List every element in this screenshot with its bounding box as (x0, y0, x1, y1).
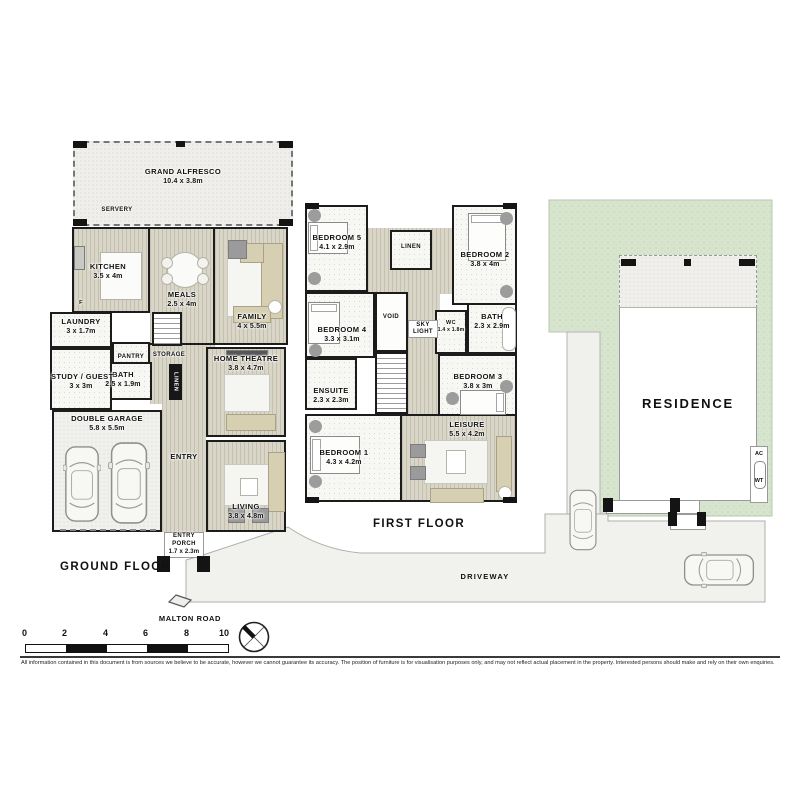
wall-pillar (503, 203, 517, 209)
dining-chair (197, 273, 209, 285)
alfresco-pillar (73, 219, 87, 226)
room-label-home-theatre: HOME THEATRE 3.8 x 4.7m (210, 354, 282, 373)
room-label-ensuite: ENSUITE 2.3 x 2.3m (307, 386, 355, 405)
ceiling-dot (500, 285, 513, 298)
room-label-leisure: LEISURE 5.5 x 4.2m (438, 420, 496, 439)
residence-label: RESIDENCE (625, 396, 751, 411)
room-label-study-guest: STUDY / GUEST 3 x 3m (51, 372, 111, 391)
residence-pillar (684, 259, 691, 266)
disclaimer-text: All information contained in this docume… (21, 660, 779, 666)
scale-tick: 10 (219, 628, 229, 638)
alfresco-pillar (73, 141, 87, 148)
footer-divider (20, 656, 780, 658)
parked-car (566, 488, 600, 552)
dining-chair (197, 257, 209, 269)
scale-tick: 0 (22, 628, 27, 638)
leisure-sofa (430, 488, 484, 503)
living-table (240, 478, 258, 496)
alfresco-pillar (279, 219, 293, 226)
porch-pillar (197, 556, 210, 572)
alfresco-pillar (176, 141, 185, 147)
room-label-wc: WC 1.4 x 1.8m (436, 320, 466, 334)
first-floor-title: FIRST FLOOR (373, 518, 465, 530)
wall-pillar (503, 497, 517, 503)
first-stairs (375, 352, 408, 414)
road-label: MALTON ROAD (150, 614, 230, 623)
room-label-void: VOID (376, 314, 406, 322)
ceiling-dot (309, 420, 322, 433)
residence-porch-pillar (603, 498, 613, 512)
room-label-servery: SERVERY (92, 207, 142, 215)
room-label-grand-alfresco: GRAND ALFRESCO 10.4 x 3.8m (123, 167, 243, 186)
ceiling-dot (500, 212, 513, 225)
ceiling-dot (309, 475, 322, 488)
room-label-family: FAMILY 4 x 5.5m (219, 312, 285, 331)
ceiling-dot (308, 272, 321, 285)
dining-chair (161, 273, 173, 285)
scale-tick: 2 (62, 628, 67, 638)
room-label-skylight: SKY LIGHT (408, 320, 438, 338)
residence-porch-pillar (697, 512, 706, 526)
room-label-bedroom5: BEDROOM 5 4.1 x 2.9m (310, 233, 364, 252)
room-label-porch: PORCH 1.7 x 2.3m (160, 541, 208, 557)
residence-porch-pillar (670, 498, 680, 512)
garage-door-line (60, 529, 156, 531)
room-label-living: LIVING 3.8 x 4.8m (214, 502, 278, 521)
dining-chair (161, 257, 173, 269)
leisure-chair (410, 444, 426, 458)
room-label-meals: MEALS 2.5 x 4m (152, 290, 212, 309)
room-label-first-linen: LINEN (392, 244, 430, 252)
fridge-label: F (74, 300, 88, 307)
scale-bar-segment (66, 645, 107, 652)
ground-floor-title: GROUND FLOOR (60, 561, 171, 573)
room-label-bedroom1: BEDROOM 1 4.3 x 4.2m (314, 448, 374, 467)
room-label-double-garage: DOUBLE GARAGE 5.8 x 5.5m (62, 414, 152, 433)
room-label-laundry: LAUNDRY 3 x 1.7m (52, 317, 110, 336)
garage-car-1 (63, 444, 101, 524)
wall-pillar (305, 203, 319, 209)
scale-bar-track (25, 644, 229, 653)
scale-tick: 4 (103, 628, 108, 638)
residence-porch (606, 500, 700, 514)
garage-car-2 (107, 440, 151, 526)
scale-tick: 8 (184, 628, 189, 638)
room-label-bedroom4: BEDROOM 4 3.3 x 3.1m (316, 325, 368, 344)
residence-pillar (621, 259, 636, 266)
compass-icon (232, 611, 276, 663)
room-label-bedroom3: BEDROOM 3 3.8 x 3m (452, 372, 504, 391)
bedroom3-bed (460, 390, 506, 415)
water-tank (754, 461, 766, 489)
home-theatre-sofa (226, 414, 276, 431)
ground-stairs (152, 312, 182, 346)
scale-bar-segment (147, 645, 188, 652)
driveway-car (682, 552, 756, 588)
room-label-porch-entry: ENTRY (166, 533, 202, 541)
ceiling-dot (446, 392, 459, 405)
wall-pillar (305, 497, 319, 503)
room-label-kitchen: KITCHEN 3.5 x 4m (76, 262, 140, 281)
alfresco-pillar (279, 141, 293, 148)
ceiling-dot (308, 209, 321, 222)
leisure-chair (410, 466, 426, 480)
wt-label: WT (751, 478, 767, 484)
room-label-storage: STORAGE (146, 352, 192, 360)
residence-pillar (739, 259, 755, 266)
void-room (375, 292, 408, 352)
ground-linen-cupboard: LINEN (169, 364, 182, 400)
residence-porch-pillar (668, 512, 677, 526)
room-label-entry: ENTRY (164, 452, 204, 462)
family-armchair (228, 240, 247, 259)
driveway-label: DRIVEWAY (440, 572, 530, 581)
room-label-bedroom2: BEDROOM 2 3.8 x 4m (460, 250, 510, 269)
entry-hallway-floor (162, 398, 206, 532)
room-label-first-bath: BATH 2.3 x 2.9m (470, 312, 514, 331)
leisure-sofa (496, 436, 512, 492)
home-theatre-rug (224, 374, 270, 412)
ceiling-dot (309, 344, 322, 357)
room-label-pantry: PANTRY (113, 354, 149, 362)
scale-tick: 6 (143, 628, 148, 638)
scale-bar: 0 2 4 6 8 10 (25, 628, 231, 654)
ac-unit-label: AC (751, 451, 767, 457)
leisure-table (446, 450, 466, 474)
